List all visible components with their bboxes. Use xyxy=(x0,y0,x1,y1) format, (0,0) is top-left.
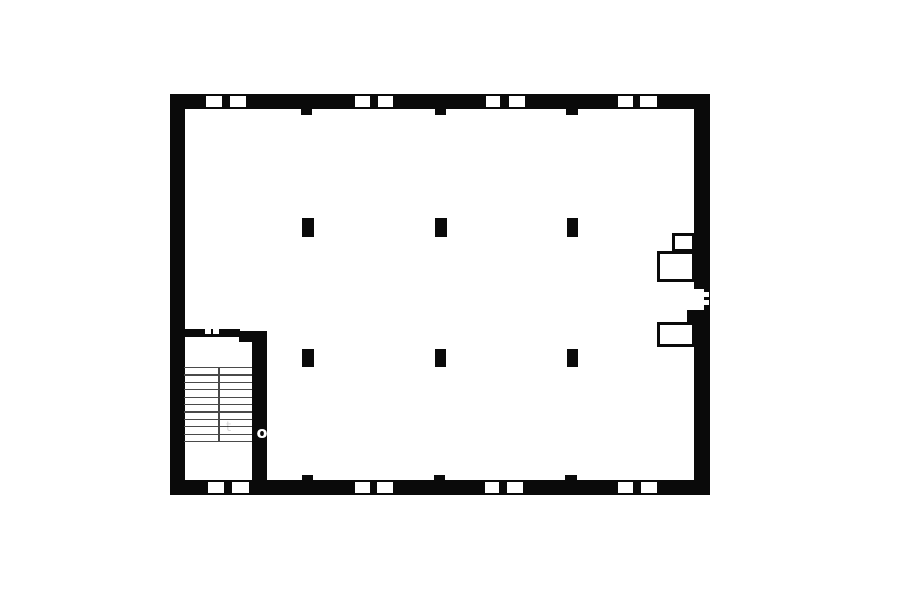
window-top-1 xyxy=(206,96,222,107)
window-bottom-7 xyxy=(618,482,633,493)
window-top-8 xyxy=(640,96,658,107)
stair-wall-dash-1 xyxy=(205,329,211,334)
window-bottom-5 xyxy=(485,482,499,493)
door-dash-2 xyxy=(704,300,709,305)
stair-divider xyxy=(218,367,219,442)
floor-plan-canvas: ot xyxy=(0,0,900,604)
window-top-2 xyxy=(230,96,246,107)
door-dash-1 xyxy=(704,292,709,297)
stair-side-wall xyxy=(252,338,267,480)
column-r1-c3 xyxy=(567,218,579,237)
column-r2-c1 xyxy=(302,349,314,367)
column-r2-c2 xyxy=(435,349,447,367)
window-bottom-4 xyxy=(377,482,393,493)
window-top-6 xyxy=(509,96,525,107)
watermark-letter-1: o xyxy=(257,425,268,441)
window-bottom-8 xyxy=(641,482,657,493)
column-r1-c1 xyxy=(302,218,314,237)
pier-top-1 xyxy=(301,109,312,115)
watermark-letter-2: t xyxy=(226,421,231,434)
right-wall-upper xyxy=(694,94,710,289)
left-wall xyxy=(170,94,185,495)
column-r1-c2 xyxy=(435,218,447,237)
window-top-3 xyxy=(355,96,370,107)
right-wall-lower xyxy=(694,310,710,495)
column-r2-c3 xyxy=(567,349,579,367)
window-bottom-3 xyxy=(355,482,370,493)
pier-bottom-1 xyxy=(302,475,314,480)
window-bottom-6 xyxy=(507,482,523,493)
duct-upper-large xyxy=(657,251,695,282)
window-bottom-1 xyxy=(208,482,224,493)
window-top-7 xyxy=(618,96,633,107)
pier-top-3 xyxy=(566,109,578,115)
pier-top-2 xyxy=(435,109,446,115)
pier-bottom-3 xyxy=(565,475,577,480)
duct-upper-small xyxy=(672,233,695,252)
window-top-5 xyxy=(486,96,500,107)
stair-wall-dash-2 xyxy=(213,329,219,334)
duct-lower xyxy=(657,322,695,348)
window-top-4 xyxy=(378,96,394,107)
pier-bottom-2 xyxy=(434,475,446,480)
window-bottom-2 xyxy=(232,482,250,493)
